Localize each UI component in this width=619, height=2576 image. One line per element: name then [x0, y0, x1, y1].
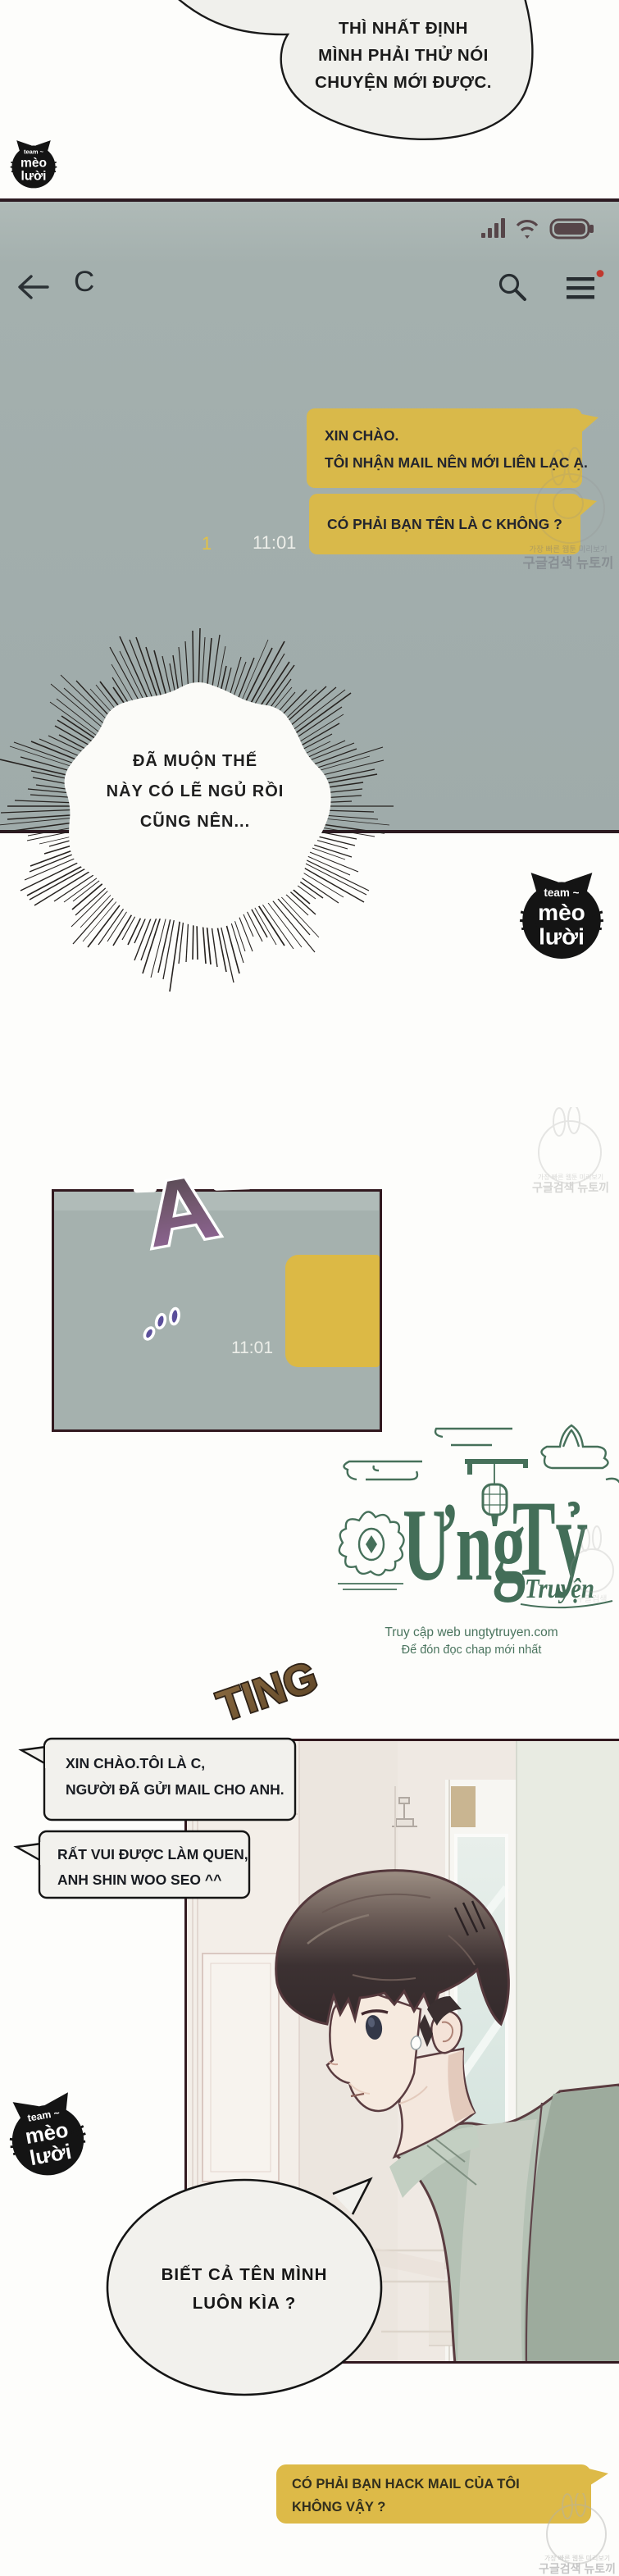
svg-text:ANH SHIN WOO SEO ^^: ANH SHIN WOO SEO ^^: [57, 1872, 221, 1888]
svg-text:A: A: [137, 1163, 225, 1258]
svg-text:Để đón đọc chap mới nhất: Để đón đọc chap mới nhất: [402, 1644, 542, 1657]
svg-text:구글검색 뉴토끼: 구글검색 뉴토끼: [532, 1181, 609, 1194]
svg-text:Ưng: Ưng: [403, 1489, 526, 1603]
svg-text:CÓ PHẢI BẠN HACK MAIL CỦA TÔI: CÓ PHẢI BẠN HACK MAIL CỦA TÔI: [292, 2476, 520, 2492]
svg-text:CŨNG NÊN...: CŨNG NÊN...: [140, 811, 250, 831]
svg-text:TING: TING: [212, 1653, 323, 1730]
svg-text:Truy cập web ungtytruyen.com: Truy cập web ungtytruyen.com: [385, 1625, 558, 1639]
svg-text:XIN CHÀO.TÔI LÀ C,: XIN CHÀO.TÔI LÀ C,: [66, 1754, 205, 1771]
svg-text:LUÔN KÌA ?: LUÔN KÌA ?: [193, 2293, 297, 2313]
svg-text:NÀY CÓ LẼ NGỦ RỒI: NÀY CÓ LẼ NGỦ RỒI: [107, 781, 284, 800]
svg-text:ĐÃ MUỘN THẾ: ĐÃ MUỘN THẾ: [133, 750, 257, 770]
svg-text:mèo: mèo: [538, 900, 585, 925]
svg-text:NGƯỜI ĐÃ GỬI MAIL CHO ANH.: NGƯỜI ĐÃ GỬI MAIL CHO ANH.: [66, 1780, 284, 1798]
svg-text:BIẾT CẢ TÊN MÌNH: BIẾT CẢ TÊN MÌNH: [162, 2264, 328, 2284]
svg-text:가장 빠른 웹툰 미리보기: 가장 빠른 웹툰 미리보기: [538, 1173, 603, 1181]
svg-text:가장 빠른 웹툰 미리보기: 가장 빠른 웹툰 미리보기: [544, 2554, 610, 2562]
svg-text:RẤT VUI ĐƯỢC LÀM QUEN,: RẤT VUI ĐƯỢC LÀM QUEN,: [57, 1845, 248, 1862]
svg-text:lười: lười: [539, 923, 585, 949]
svg-text:KHÔNG VẬY ?: KHÔNG VẬY ?: [292, 2499, 385, 2514]
svg-text:구글검색 뉴토끼: 구글검색 뉴토끼: [539, 2562, 616, 2575]
svg-text:구글검색: 구글검색: [577, 1594, 608, 1604]
svg-text:team ~: team ~: [544, 887, 579, 899]
